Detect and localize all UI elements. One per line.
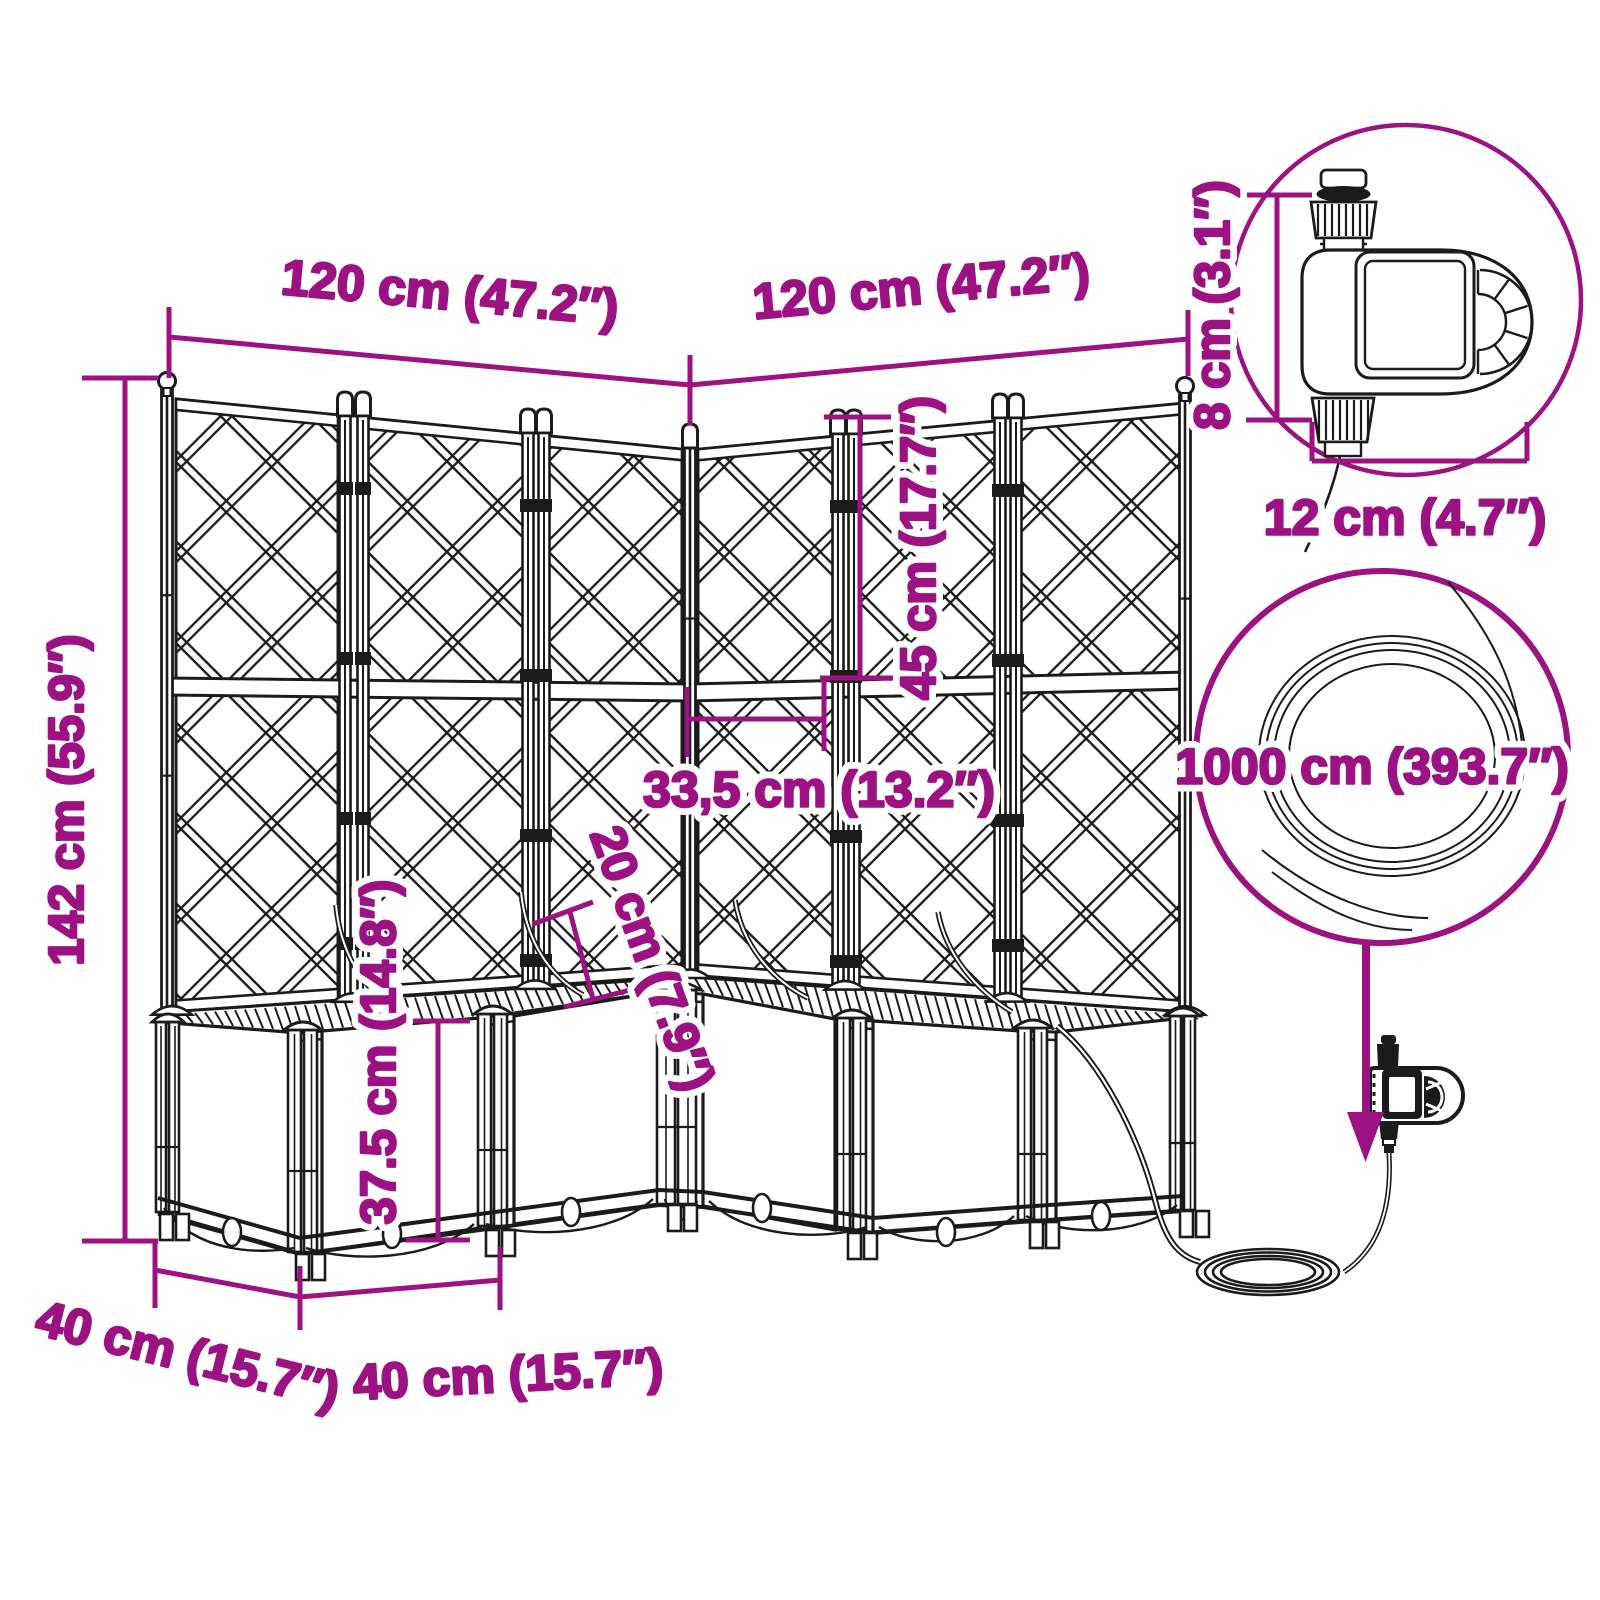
svg-text:142 cm (55.9″): 142 cm (55.9″) — [40, 634, 94, 965]
svg-text:12 cm (4.7″): 12 cm (4.7″) — [1264, 490, 1546, 546]
svg-text:1000 cm (393.7″): 1000 cm (393.7″) — [1175, 739, 1569, 795]
svg-text:37.5 cm (14.8″): 37.5 cm (14.8″) — [352, 880, 406, 1225]
svg-text:33,5 cm (13.2″): 33,5 cm (13.2″) — [643, 762, 995, 818]
svg-text:8 cm (3.1″): 8 cm (3.1″) — [1186, 180, 1240, 430]
svg-text:45 cm (17.7″): 45 cm (17.7″) — [892, 396, 946, 700]
